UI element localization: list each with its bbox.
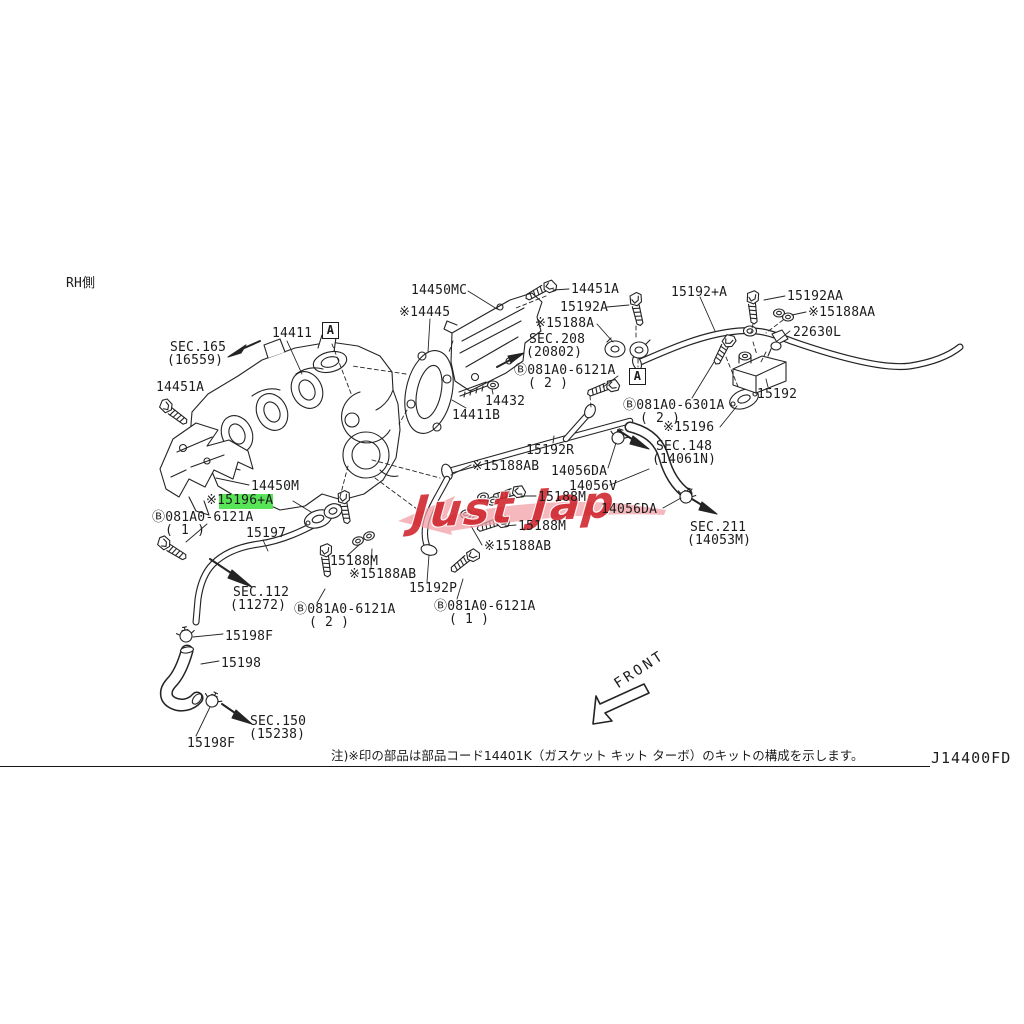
parts-diagram-page: RH側 SEC.165 (16559) 14411 A 14451A 14450…	[0, 0, 1024, 1024]
callout-15188aa: ※15188AA	[808, 306, 875, 321]
callout-14451a-left: 14451A	[156, 381, 204, 396]
callout-15188m-2: 15188M	[518, 520, 566, 535]
callout-15188ab-1: ※15188AB	[472, 460, 539, 475]
callout-15192aa: 15192AA	[787, 290, 843, 305]
callout-boxed-a-2: A	[629, 368, 646, 385]
callout-b-6121a-bottom-qty: ( 2 )	[309, 616, 349, 631]
callout-sec112-num: (11272)	[230, 599, 286, 614]
callout-15196: ※15196	[663, 421, 714, 436]
callout-b-6121a-top-qty: ( 2 )	[528, 377, 568, 392]
callout-b-6121a-right-qty: ( 1 )	[449, 613, 489, 628]
callout-sec150-num: (15238)	[249, 728, 305, 743]
callout-15196-plus-a: ※15196+A	[206, 494, 273, 509]
callout-rh-side: RH側	[66, 277, 95, 292]
callout-15192-plus-a: 15192+A	[671, 286, 727, 301]
footer-rule	[0, 766, 930, 767]
callout-14056da-1: 14056DA	[551, 465, 607, 480]
callout-15198f-1: 15198F	[225, 630, 273, 645]
callout-15188a: ※15188A	[535, 317, 594, 332]
callout-15188ab-3: ※15188AB	[349, 568, 416, 583]
callout-boxed-a-1: A	[322, 322, 339, 339]
kit-footnote: 注)※印の部品は部品コード14401K（ガスケット キット ターボ）のキットの構…	[331, 745, 864, 764]
callout-14056da-2: 14056DA	[601, 503, 657, 518]
callout-sec148-num: (14061N)	[652, 453, 716, 468]
callout-14411: 14411	[272, 327, 312, 342]
callout-22630l: 22630L	[793, 326, 841, 341]
callout-14411b: 14411B	[452, 409, 500, 424]
callout-14450mc: 14450MC	[411, 284, 467, 299]
callout-sec208-num: (20802)	[526, 346, 582, 361]
callout-15197: 15197	[246, 527, 286, 542]
callout-15198: 15198	[221, 657, 261, 672]
callout-15188ab-2: ※15188AB	[484, 540, 551, 555]
callout-15198f-2: 15198F	[187, 737, 235, 752]
callout-sec211-num: (14053M)	[687, 534, 751, 549]
callout-15192r: 15192R	[526, 444, 574, 459]
callout-14451a-top: 14451A	[571, 283, 619, 298]
callout-b-6121a-left-qty: ( 1 )	[165, 524, 205, 539]
callout-15188m-1: 15188M	[538, 491, 586, 506]
callout-sec165-num: (16559)	[167, 354, 223, 369]
callout-15192a: 15192A	[560, 301, 608, 316]
callout-14445: ※14445	[399, 306, 450, 321]
sheet-code: J14400FD	[931, 749, 1011, 767]
callout-15192p: 15192P	[409, 582, 457, 597]
callout-15192: 15192	[757, 388, 797, 403]
